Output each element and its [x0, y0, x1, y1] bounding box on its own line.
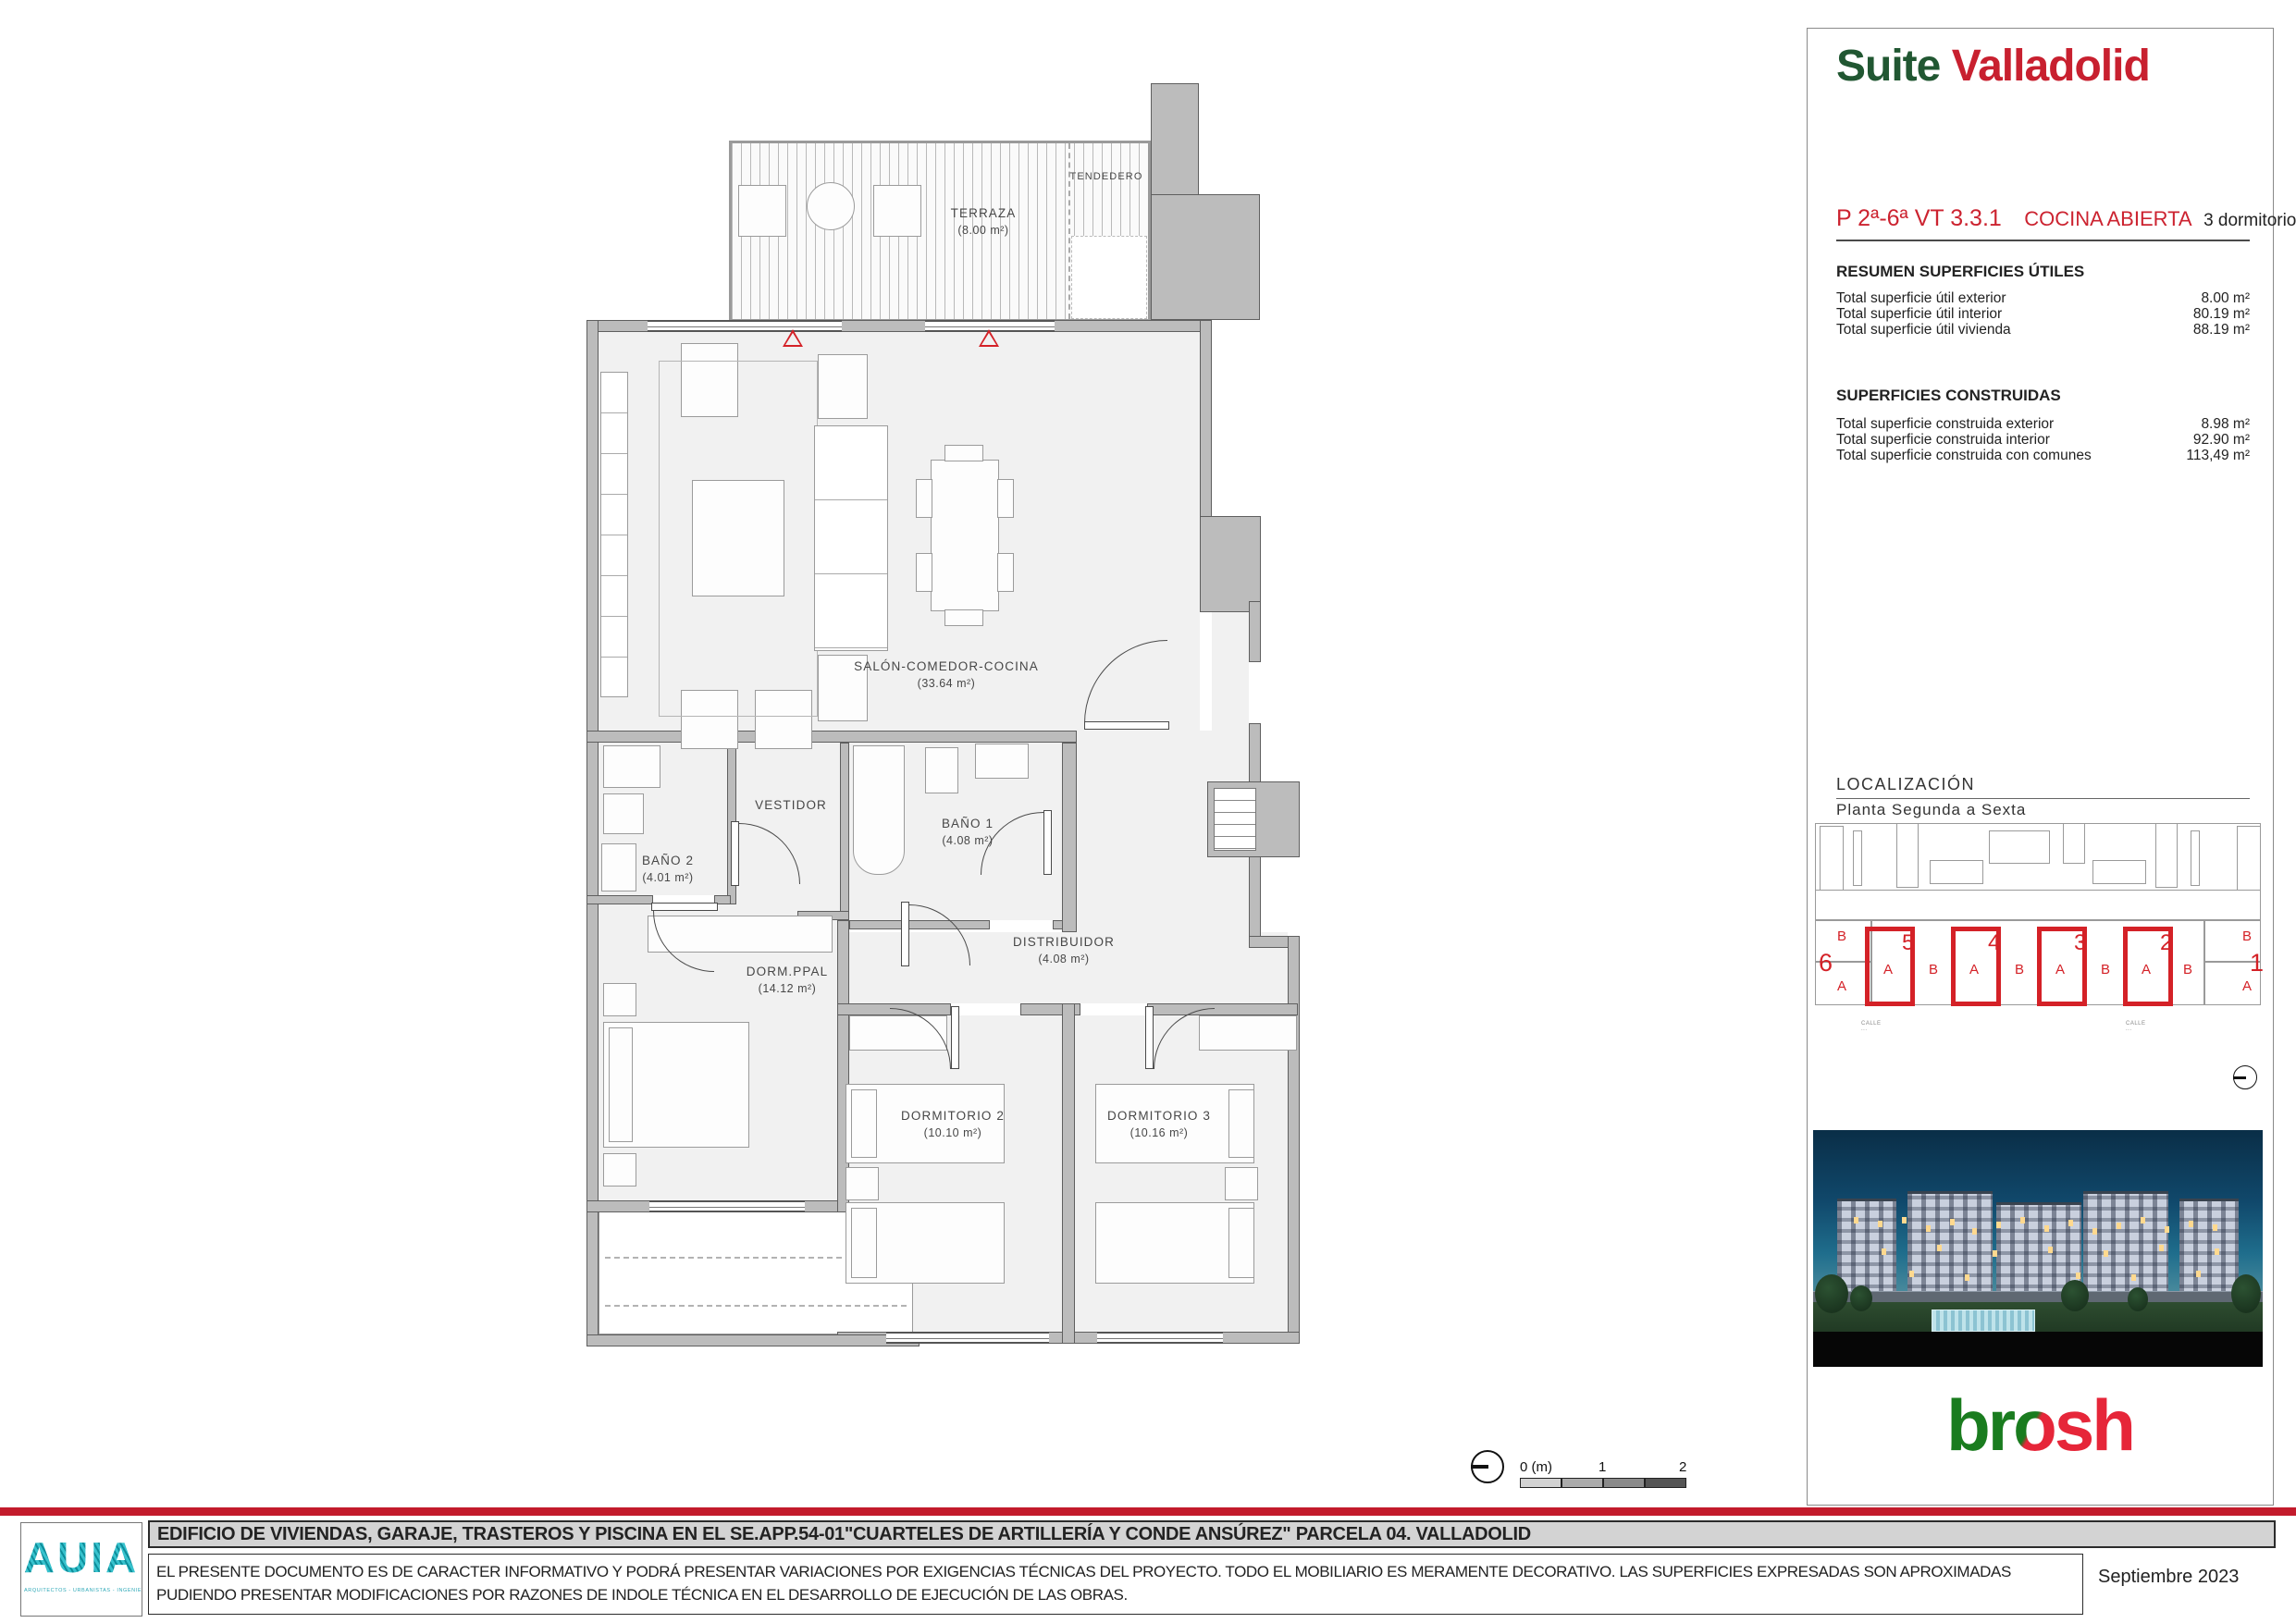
loc-shape: [1853, 830, 1862, 886]
loc-letter: B: [1929, 962, 1938, 977]
area-row: Total superficie construida interior 92.…: [1836, 432, 2250, 449]
built-areas-title: SUPERFICIES CONSTRUIDAS: [1836, 387, 2250, 405]
brand-city: Valladolid: [1952, 42, 2150, 91]
localization-subtitle: Planta Segunda a Sexta: [1836, 801, 2250, 819]
scalebar-zero: 0 (m): [1520, 1459, 1552, 1475]
bathtub: [853, 745, 905, 875]
loc-divider: [2203, 920, 2205, 1005]
furniture: [997, 553, 1014, 592]
loc-shape: [1930, 860, 1983, 884]
brosh-sh: sh: [2055, 1384, 2133, 1466]
rug: [659, 361, 818, 717]
disclaimer-line: PUDIENDO PRESENTAR MODIFICACIONES POR RA…: [156, 1583, 2075, 1606]
scalebar-one: 1: [1599, 1459, 1606, 1475]
room-label-tendedero: TENDEDERO: [1070, 168, 1143, 185]
render-tower: [2179, 1199, 2239, 1299]
render-tower: [2083, 1191, 2168, 1299]
stairs: [1214, 788, 1256, 851]
furniture: [1228, 1089, 1254, 1158]
area-row: Total superficie útil interior 80.19 m²: [1836, 306, 2250, 323]
footer-red-bar: [0, 1507, 2296, 1516]
furniture: [851, 1208, 877, 1278]
room-floor: [1212, 612, 1249, 732]
area-row: Total superficie útil exterior 8.00 m²: [1836, 290, 2250, 307]
brochure-page: TERRAZA(8.00 m²) TENDEDERO SALÓN-COMEDOR…: [0, 0, 2296, 1623]
wall: [586, 320, 599, 1346]
scalebar-segment: [1645, 1478, 1686, 1488]
room-label-bano1: BAÑO 1(4.08 m²): [942, 816, 994, 849]
loc-portal-number: 6: [1819, 949, 1833, 977]
room-label-dorm2: DORMITORIO 2(10.10 m²): [901, 1108, 1005, 1141]
render-bottom-strip: [1813, 1332, 2263, 1367]
window: [649, 1200, 805, 1212]
loc-portal-number: 2: [2160, 930, 2172, 956]
useful-areas-title: RESUMEN SUPERFICIES ÚTILES: [1836, 263, 2250, 281]
area-value: 113,49 m²: [2186, 448, 2250, 464]
furniture: [916, 553, 932, 592]
room-label-dormppal: DORM.PPAL(14.12 m²): [747, 964, 828, 997]
wall: [586, 1334, 920, 1346]
furniture: [931, 460, 999, 611]
area-value: 92.90 m²: [2193, 432, 2250, 449]
furniture: [851, 1089, 877, 1158]
loc-letter: A: [1969, 962, 1979, 977]
kitchen-counter: [600, 372, 628, 697]
area-value: 8.98 m²: [2201, 416, 2250, 433]
disclaimer-box: EL PRESENTE DOCUMENTO ES DE CARACTER INF…: [148, 1554, 2083, 1615]
wall: [1288, 936, 1300, 1344]
furniture: [916, 479, 932, 518]
wall: [1151, 194, 1260, 320]
area-label: Total superficie útil vivienda: [1836, 322, 2011, 338]
window: [1097, 1332, 1223, 1344]
area-row: Total superficie construida con comunes …: [1836, 448, 2250, 464]
furniture: [601, 843, 636, 891]
render-lawn: [1813, 1302, 2263, 1335]
brosh-logo: brosh: [1915, 1383, 2165, 1468]
localization-title: LOCALIZACIÓN: [1836, 775, 2250, 799]
dorm2-door-leaf: [951, 1006, 959, 1069]
brosh-o: o: [2013, 1384, 2055, 1466]
unit-kitchen-type: COCINA ABIERTA: [2024, 207, 2191, 230]
loc-letter: B: [2242, 928, 2252, 944]
area-label: Total superficie construida exterior: [1836, 416, 2054, 433]
room-label-vestidor: VESTIDOR: [755, 797, 827, 814]
loc-shape: [2092, 860, 2146, 884]
unit-bedrooms: 3 dormitorios: [2203, 211, 2296, 230]
loc-letter: B: [2015, 962, 2024, 977]
brand-title: Suite Valladolid: [1836, 41, 2150, 92]
room-label-salon: SALÓN-COMEDOR-COCINA(33.64 m²): [854, 658, 1039, 692]
furniture: [944, 445, 983, 461]
auia-name: AUIA: [21, 1532, 142, 1582]
render-pool: [1932, 1309, 2035, 1332]
unit-line: P 2ª-6ª VT 3.3.1 COCINA ABIERTA 3 dormit…: [1836, 205, 2250, 241]
area-row: Total superficie construida exterior 8.9…: [1836, 416, 2250, 433]
auia-logo: AUIA ARQUITECTOS - URBANISTAS - INGENIER…: [20, 1522, 142, 1617]
furniture: [738, 185, 786, 237]
vestidor-door-leaf: [731, 821, 739, 886]
loc-letter: A: [2242, 978, 2252, 994]
brosh-br: br: [1946, 1384, 2013, 1466]
street-label: CALLE ...: [1861, 1021, 1882, 1032]
loc-portal-number: 1: [2250, 949, 2264, 977]
brand-suite: Suite: [1836, 42, 1940, 91]
tendedero-area: [1071, 236, 1147, 319]
wall: [586, 895, 653, 904]
render-tree: [2061, 1280, 2089, 1311]
scalebar-segment: [1603, 1478, 1645, 1488]
loc-portal-number: 3: [2074, 930, 2086, 956]
furniture: [925, 747, 958, 793]
north-arrow-line: [2233, 1076, 2246, 1079]
furniture: [609, 1027, 633, 1142]
loc-shape: [1815, 890, 2261, 920]
furniture: [603, 983, 636, 1016]
north-arrow-line: [1471, 1465, 1488, 1469]
furniture: [603, 793, 644, 834]
furniture: [997, 479, 1014, 518]
wall: [1249, 601, 1261, 662]
awning-dash: [605, 1305, 907, 1307]
wall: [840, 743, 849, 920]
door-mark-triangle: [783, 329, 803, 347]
loc-portal-number: 5: [1902, 930, 1914, 956]
furniture: [1228, 1208, 1254, 1278]
area-label: Total superficie útil interior: [1836, 306, 2002, 323]
wall: [586, 731, 1077, 743]
wall: [1062, 1003, 1075, 1344]
loc-shape: [2063, 823, 2085, 864]
room-label-distribuidor: DISTRIBUIDOR(4.08 m²): [1013, 934, 1115, 967]
render-tree: [1850, 1285, 1872, 1311]
street-label: CALLE ...: [2126, 1021, 2146, 1032]
render-tower: [1907, 1191, 1993, 1299]
loc-letter: A: [1883, 962, 1893, 977]
bath1-door-leaf: [1043, 810, 1052, 875]
wall: [1200, 320, 1212, 528]
wall: [1200, 516, 1261, 612]
window: [886, 1332, 1049, 1344]
loc-letter: A: [2055, 962, 2065, 977]
wall: [1147, 1003, 1298, 1015]
render-tree: [2231, 1274, 2261, 1313]
loc-shape: [2155, 823, 2178, 888]
scalebar-segment: [1562, 1478, 1603, 1488]
floor-plan: TERRAZA(8.00 m²) TENDEDERO SALÓN-COMEDOR…: [0, 0, 1804, 1507]
room-label-terraza: TERRAZA(8.00 m²): [951, 205, 1017, 239]
furniture: [603, 745, 660, 788]
room-label-bano2: BAÑO 2(4.01 m²): [642, 853, 694, 886]
wall: [1151, 83, 1199, 202]
room-label-dorm3: DORMITORIO 3(10.16 m²): [1107, 1108, 1211, 1141]
unit-code: P 2ª-6ª VT 3.3.1: [1836, 205, 2002, 231]
terrace-table: [807, 182, 855, 230]
scalebar-segment: [1520, 1478, 1562, 1488]
furniture: [975, 744, 1029, 779]
furniture: [1225, 1167, 1258, 1200]
loc-letter: A: [1837, 978, 1846, 994]
render-tree: [2128, 1287, 2148, 1311]
loc-letter: B: [1837, 928, 1846, 944]
door-mark-triangle: [979, 329, 999, 347]
render-tree: [1815, 1274, 1848, 1313]
loc-shape: [2191, 830, 2200, 886]
area-row: Total superficie útil vivienda 88.19 m²: [1836, 322, 2250, 338]
loc-shape: [1820, 826, 1844, 898]
furniture: [603, 1153, 636, 1187]
wall: [1062, 743, 1077, 932]
project-title-bar: EDIFICIO DE VIVIENDAS, GARAJE, TRASTEROS…: [148, 1520, 2276, 1548]
area-value: 8.00 m²: [2201, 290, 2250, 307]
furniture: [846, 1167, 879, 1200]
disclaimer-line: EL PRESENTE DOCUMENTO ES DE CARACTER INF…: [156, 1560, 2075, 1583]
loc-letter: B: [2183, 962, 2192, 977]
area-value: 80.19 m²: [2193, 306, 2250, 323]
building-render-image: [1813, 1130, 2263, 1367]
area-value: 88.19 m²: [2193, 322, 2250, 338]
loc-shape: [1896, 823, 1919, 888]
window: [648, 320, 842, 332]
furniture: [873, 185, 921, 237]
bath2-door-leaf: [651, 903, 718, 911]
furniture: [944, 609, 983, 626]
area-label: Total superficie útil exterior: [1836, 290, 2006, 307]
scalebar-two: 2: [1679, 1459, 1686, 1475]
master-door-leaf: [901, 902, 909, 966]
loc-shape: [2237, 826, 2261, 898]
furniture: [818, 354, 868, 419]
dorm3-door-leaf: [1145, 1006, 1154, 1069]
loc-portal-number: 4: [1988, 930, 2000, 956]
loc-letter: B: [2101, 962, 2110, 977]
area-label: Total superficie construida con comunes: [1836, 448, 2092, 464]
area-label: Total superficie construida interior: [1836, 432, 2050, 449]
date-label: Septiembre 2023: [2098, 1567, 2239, 1588]
loc-shape: [1989, 830, 2050, 864]
sofa: [814, 425, 888, 651]
auia-tagline: ARQUITECTOS - URBANISTAS - INGENIEROS - …: [24, 1588, 142, 1593]
render-lit-windows: [1854, 1217, 1858, 1223]
loc-letter: A: [2142, 962, 2151, 977]
